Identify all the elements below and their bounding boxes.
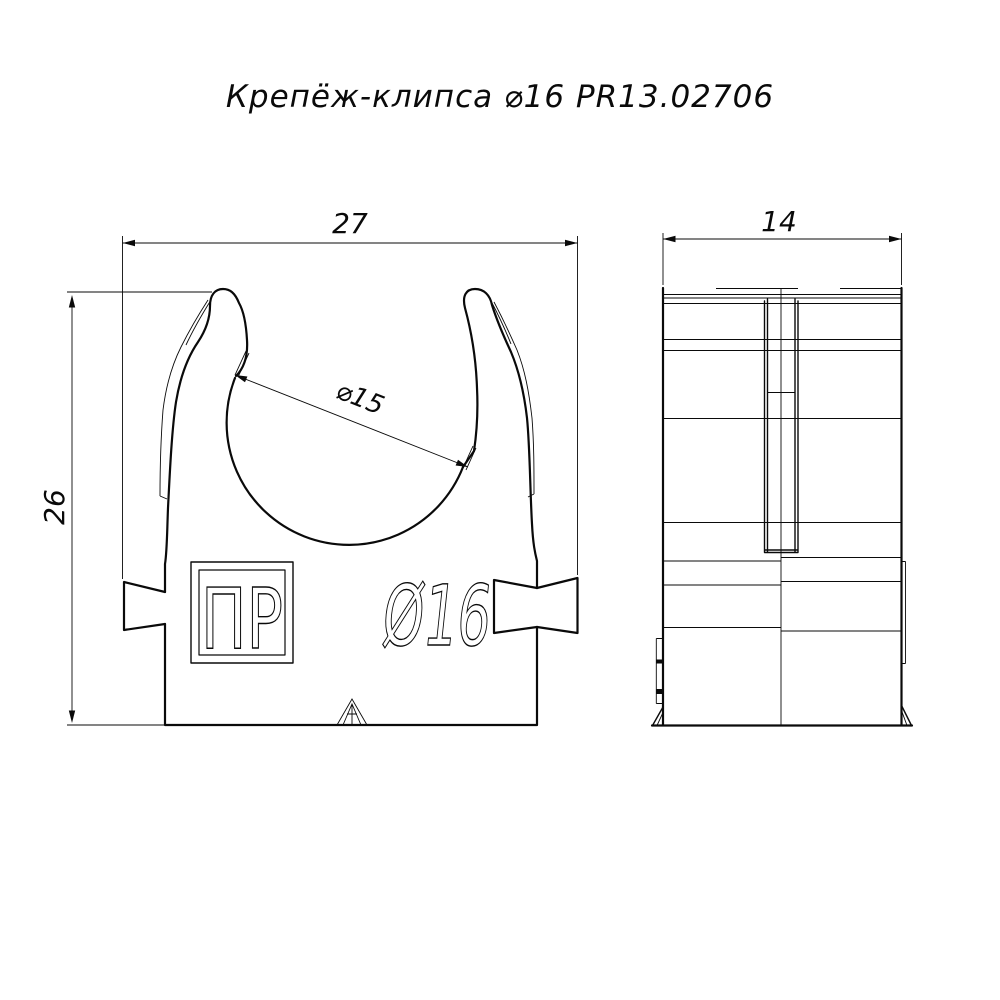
left-arm-outline [165, 289, 247, 592]
side-view [652, 288, 912, 726]
arrowhead-up-icon [69, 295, 75, 308]
arrowhead-right-icon [889, 236, 902, 242]
dimension-inner-diameter: ⌀15 [235, 375, 468, 467]
side-outline [652, 288, 912, 726]
front-view: ПР Ø16 [124, 289, 578, 725]
left-arm-ridge [160, 300, 211, 499]
dim-depth-value: 14 [761, 205, 797, 238]
arrowhead-left-icon [663, 236, 676, 242]
injection-gate-mark [337, 699, 367, 725]
drawing-sheet: Крепёж-клипса ⌀16 PR13.02706 [0, 0, 1000, 1000]
arrowhead-upleft-icon [235, 375, 247, 382]
size-marking: Ø16 [378, 567, 496, 665]
arrowhead-left-icon [123, 240, 136, 246]
dim-height-value: 26 [38, 489, 71, 525]
side-feature-lines [663, 289, 902, 632]
dim-inner-diameter-value: ⌀15 [332, 376, 388, 422]
right-arm-outline [463, 289, 537, 588]
arrowhead-down-icon [69, 711, 75, 724]
side-feet [653, 706, 912, 726]
right-arm-ridge [491, 301, 534, 497]
pr-logo: ПР [191, 562, 293, 668]
arrowhead-right-icon [565, 240, 578, 246]
left-dovetail-wing [124, 582, 165, 630]
right-dovetail-wing [537, 578, 578, 633]
right-dovetail-recess [494, 580, 537, 633]
dimension-depth: 14 [663, 205, 902, 285]
dim-width-value: 27 [332, 207, 368, 240]
dimension-height: 26 [38, 292, 212, 725]
pr-logo-text: ПР [201, 570, 283, 668]
technical-drawing: ПР Ø16 27 26 ⌀15 [0, 0, 1000, 1000]
